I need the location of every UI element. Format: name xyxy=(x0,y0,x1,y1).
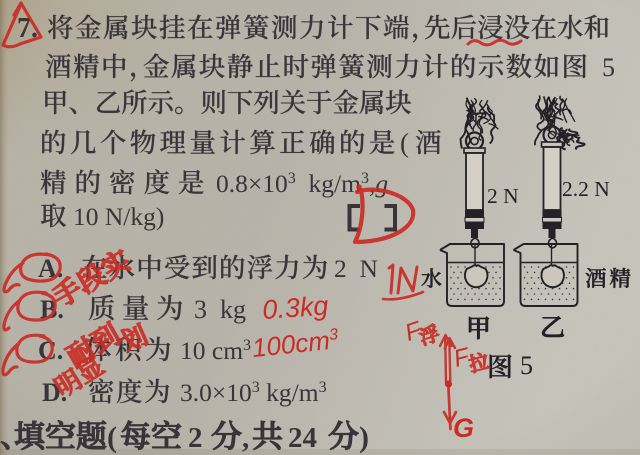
svg-text:2: 2 xyxy=(188,422,203,454)
svg-text:,: , xyxy=(242,422,249,454)
svg-text:0.3kg: 0.3kg xyxy=(261,291,329,326)
svg-text:10 cm3: 10 cm3 xyxy=(180,336,251,365)
svg-text:(: ( xyxy=(107,421,117,454)
svg-text:2 N: 2 N xyxy=(334,254,378,283)
svg-text:G: G xyxy=(453,413,474,443)
svg-text:): ) xyxy=(359,421,369,454)
svg-text:3 kg: 3 kg xyxy=(194,295,246,324)
svg-text:5: 5 xyxy=(520,351,533,380)
svg-text:(: ( xyxy=(400,128,409,158)
svg-text:2 N: 2 N xyxy=(487,184,519,208)
svg-text:10 N/kg): 10 N/kg) xyxy=(73,202,164,231)
svg-text:2.2 N: 2.2 N xyxy=(562,177,610,201)
svg-text:5: 5 xyxy=(602,53,615,82)
svg-text:24: 24 xyxy=(288,422,317,454)
